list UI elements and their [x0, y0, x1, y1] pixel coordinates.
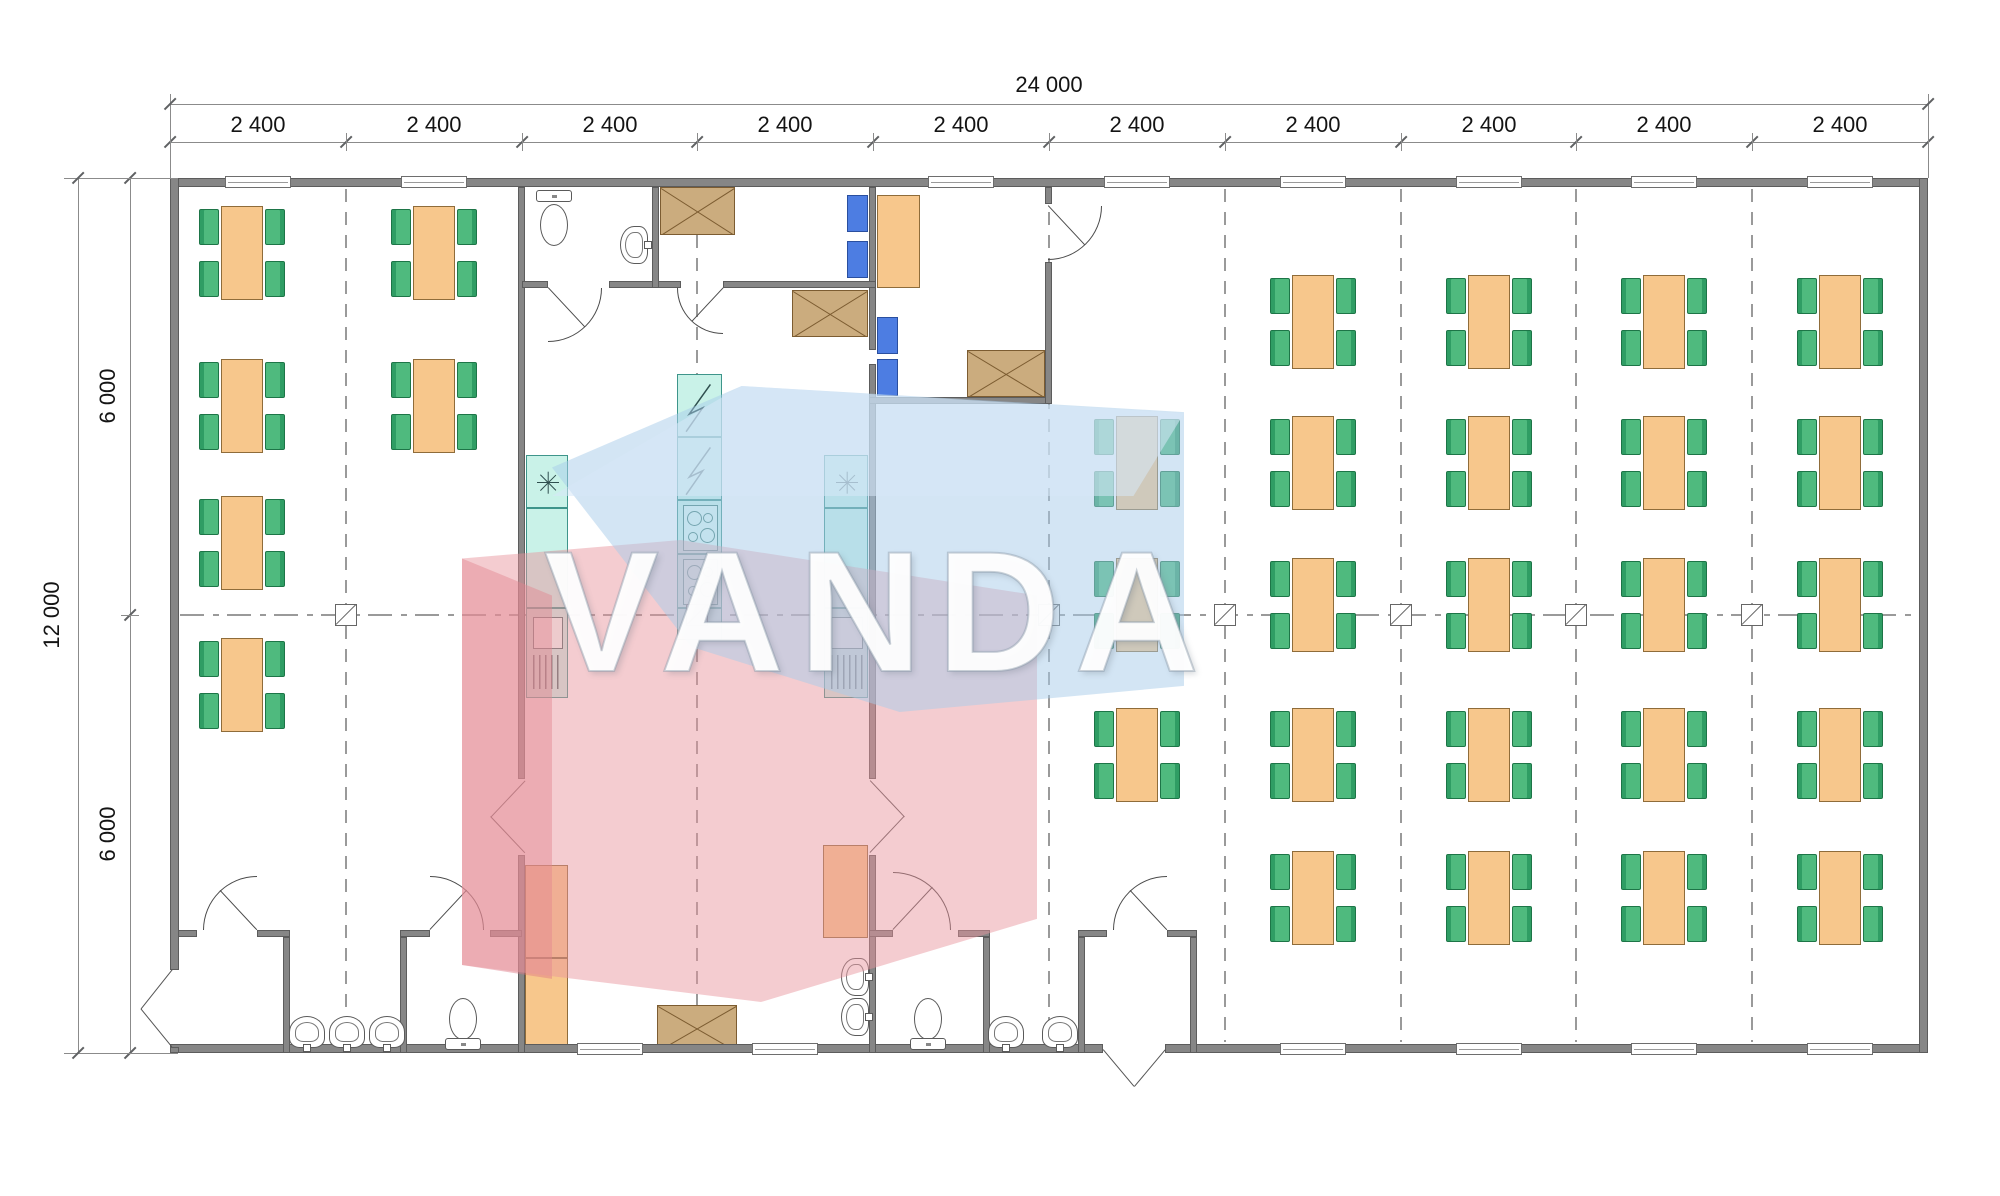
burner-icon — [688, 586, 698, 596]
fridge-vent — [831, 655, 863, 689]
chair — [1270, 419, 1290, 455]
dimension-label: 2 400 — [933, 112, 988, 138]
stove-burner-plate — [683, 559, 718, 605]
chair — [1446, 763, 1466, 799]
window-glazing-line — [1810, 182, 1870, 183]
chair — [1621, 561, 1641, 597]
chair — [1446, 330, 1466, 366]
wall-segment — [609, 281, 681, 288]
dining-table — [221, 359, 263, 453]
sink-basin — [625, 232, 643, 258]
dimension-label: 12 000 — [39, 581, 65, 648]
chair — [1446, 613, 1466, 649]
chair — [1687, 763, 1707, 799]
floor-plan-canvas: 24 0002 4002 4002 4002 4002 4002 4002 40… — [0, 0, 2000, 1196]
blue-chair — [847, 241, 868, 278]
stove-burner-plate — [683, 505, 718, 551]
chair — [1863, 613, 1883, 649]
door-leaf — [1102, 1050, 1134, 1088]
chair — [265, 499, 285, 535]
chair — [1512, 854, 1532, 890]
chair — [1687, 561, 1707, 597]
chair — [199, 209, 219, 245]
dining-table — [1643, 708, 1685, 802]
equipment-box — [792, 290, 868, 337]
chair — [1687, 278, 1707, 314]
kitchen-unit-star — [824, 455, 868, 508]
window-glazing-line — [1634, 182, 1694, 183]
kitchen-unit-plain — [824, 508, 868, 608]
dimension-label: 2 400 — [1109, 112, 1164, 138]
chair — [1863, 854, 1883, 890]
extension-line — [522, 133, 523, 151]
counter-cabinet — [525, 865, 568, 958]
chair — [1160, 419, 1180, 455]
chair — [1270, 330, 1290, 366]
window — [577, 1043, 643, 1055]
sink-basin — [994, 1022, 1018, 1042]
chair — [199, 551, 219, 587]
wall-segment — [869, 855, 876, 1053]
chair — [1446, 561, 1466, 597]
dining-table — [1292, 851, 1334, 945]
door-leaf — [869, 781, 904, 818]
module-marker-diagonal — [1391, 605, 1412, 626]
chair — [1797, 561, 1817, 597]
dimension-label: 2 400 — [230, 112, 285, 138]
chair — [1797, 763, 1817, 799]
dimension-label: 6 000 — [95, 368, 121, 423]
extension-line — [1752, 133, 1753, 151]
sink-tap — [343, 1044, 351, 1052]
chair — [1446, 711, 1466, 747]
burner-icon — [687, 511, 702, 526]
chair — [1512, 763, 1532, 799]
burner-icon — [703, 513, 713, 523]
chair — [1621, 613, 1641, 649]
chair — [265, 209, 285, 245]
chair — [1621, 854, 1641, 890]
chair — [1621, 330, 1641, 366]
chair — [199, 414, 219, 450]
module-marker — [1038, 604, 1060, 626]
chair — [391, 414, 411, 450]
sink-tap — [1002, 1044, 1010, 1052]
module-marker-diagonal — [336, 605, 357, 626]
chair — [265, 414, 285, 450]
chair — [391, 261, 411, 297]
chair — [265, 362, 285, 398]
chair — [1797, 613, 1817, 649]
chair — [1336, 711, 1356, 747]
chair — [457, 209, 477, 245]
window-glazing-line — [1283, 182, 1343, 183]
toilet — [445, 1038, 481, 1050]
chair — [1797, 906, 1817, 942]
fridge-vent — [533, 655, 563, 689]
window-glazing-line — [755, 1049, 815, 1050]
chair — [1797, 711, 1817, 747]
dining-table — [1292, 708, 1334, 802]
chair — [1094, 763, 1114, 799]
chair — [1336, 278, 1356, 314]
dining-table — [1468, 851, 1510, 945]
dimension-label: 2 400 — [1636, 112, 1691, 138]
sink-basin — [1048, 1022, 1072, 1042]
wall-segment — [1045, 262, 1052, 404]
chair — [1512, 278, 1532, 314]
wall-segment — [1078, 937, 1085, 1053]
chair — [1270, 763, 1290, 799]
chair — [1512, 330, 1532, 366]
chair — [1094, 613, 1114, 649]
dimension-label: 24 000 — [1015, 72, 1082, 98]
sink-basin — [335, 1022, 359, 1042]
sink-tap — [303, 1044, 311, 1052]
dining-table — [1819, 558, 1861, 652]
chair — [1094, 561, 1114, 597]
chair — [265, 551, 285, 587]
module-marker — [1214, 604, 1236, 626]
chair — [1160, 561, 1180, 597]
toilet — [910, 1038, 946, 1050]
dining-table — [413, 206, 455, 300]
burner-icon — [700, 582, 715, 597]
wall-segment — [1078, 930, 1107, 937]
dimension-label: 2 400 — [582, 112, 637, 138]
dining-table — [1116, 558, 1158, 652]
wall-segment — [522, 281, 548, 288]
chair — [457, 414, 477, 450]
module-marker — [1741, 604, 1763, 626]
sink-basin — [846, 964, 864, 990]
chair — [1687, 854, 1707, 890]
chair — [1863, 763, 1883, 799]
dining-table — [1468, 708, 1510, 802]
wall-segment — [869, 930, 893, 937]
extension-line — [697, 133, 698, 151]
dining-table — [221, 638, 263, 732]
door-leaf — [140, 970, 172, 1010]
chair — [1160, 613, 1180, 649]
dining-table — [1819, 708, 1861, 802]
burner-icon — [700, 528, 715, 543]
window — [1280, 1043, 1346, 1055]
window — [401, 176, 467, 188]
chair — [1863, 278, 1883, 314]
wall-segment — [518, 187, 525, 779]
chair — [199, 362, 219, 398]
equipment-box — [660, 187, 735, 235]
chair — [1797, 278, 1817, 314]
module-marker — [335, 604, 357, 626]
window-glazing-line — [1810, 1049, 1870, 1050]
chair — [1863, 419, 1883, 455]
chair — [1336, 854, 1356, 890]
dining-table — [1819, 416, 1861, 510]
dimension-line — [170, 104, 1928, 105]
toilet-bowl — [449, 998, 477, 1040]
dimension-label: 6 000 — [95, 806, 121, 861]
dining-table — [1819, 851, 1861, 945]
sink-tap — [383, 1044, 391, 1052]
module-marker — [1390, 604, 1412, 626]
chair — [1446, 278, 1466, 314]
dining-table — [1116, 416, 1158, 510]
window-glazing-line — [1459, 182, 1519, 183]
wall-segment — [170, 178, 179, 970]
dining-table — [1292, 275, 1334, 369]
window-glazing-line — [404, 182, 464, 183]
dining-table — [1643, 275, 1685, 369]
dining-table — [1468, 558, 1510, 652]
wall-segment — [723, 281, 876, 288]
chair — [1270, 613, 1290, 649]
burner-icon — [688, 532, 698, 542]
chair — [1621, 419, 1641, 455]
sink-tap — [1056, 1044, 1064, 1052]
dining-table — [221, 206, 263, 300]
chair — [1687, 906, 1707, 942]
dining-table — [1468, 275, 1510, 369]
fridge-door — [831, 617, 863, 649]
chair — [1160, 763, 1180, 799]
dimension-label: 2 400 — [757, 112, 812, 138]
chair — [265, 261, 285, 297]
watermark-blue-top — [552, 386, 1184, 496]
chair — [1446, 854, 1466, 890]
window — [225, 176, 291, 188]
chair — [1863, 711, 1883, 747]
dining-table — [1643, 416, 1685, 510]
toilet-button — [552, 195, 557, 198]
window — [752, 1043, 818, 1055]
chair — [457, 261, 477, 297]
extension-line — [170, 133, 171, 151]
kitchen-unit-fridge — [526, 608, 568, 698]
wall-segment — [1045, 187, 1052, 204]
dining-table — [1292, 416, 1334, 510]
window — [1456, 1043, 1522, 1055]
window — [1280, 176, 1346, 188]
kitchen-unit-burners — [677, 554, 722, 608]
dining-table — [1643, 558, 1685, 652]
module-marker-diagonal — [687, 605, 708, 626]
extension-line — [873, 133, 874, 151]
chair — [1797, 330, 1817, 366]
chair — [1621, 711, 1641, 747]
wall-segment — [869, 187, 876, 350]
chair — [1270, 711, 1290, 747]
chair — [1687, 330, 1707, 366]
dining-table — [1292, 558, 1334, 652]
module-marker-diagonal — [1215, 605, 1236, 626]
toilet — [536, 190, 572, 202]
dimension-line — [78, 178, 79, 1053]
window-glazing-line — [1283, 1049, 1343, 1050]
sink-basin — [846, 1004, 864, 1030]
window — [1456, 176, 1522, 188]
module-marker — [1565, 604, 1587, 626]
watermark-text: VANDA — [544, 526, 1213, 698]
chair — [199, 693, 219, 729]
window-glazing-line — [931, 182, 991, 183]
window — [1631, 1043, 1697, 1055]
module-marker — [686, 604, 708, 626]
kitchen-unit-star — [526, 455, 568, 508]
chair — [1863, 330, 1883, 366]
wall-segment — [257, 930, 290, 937]
counter-cabinet — [525, 958, 568, 1051]
chair — [1446, 471, 1466, 507]
chair — [1446, 419, 1466, 455]
chair — [1270, 471, 1290, 507]
wall-segment — [400, 930, 430, 937]
chair — [1863, 561, 1883, 597]
chair — [1863, 471, 1883, 507]
chair — [1797, 471, 1817, 507]
sink-tap — [865, 1013, 873, 1021]
chair — [265, 641, 285, 677]
dimension-label: 2 400 — [1285, 112, 1340, 138]
dining-table — [1116, 708, 1158, 802]
chair — [1270, 278, 1290, 314]
toilet-button — [926, 1043, 931, 1046]
watermark-blue-band — [552, 386, 1184, 712]
wall-segment — [958, 930, 990, 937]
chair — [1512, 471, 1532, 507]
window-glazing-line — [1634, 1049, 1694, 1050]
module-marker-diagonal — [1039, 605, 1060, 626]
extension-line — [121, 178, 139, 179]
chair — [1687, 471, 1707, 507]
window — [1104, 176, 1170, 188]
chair — [1336, 906, 1356, 942]
chair — [391, 362, 411, 398]
chair — [1621, 763, 1641, 799]
dining-table — [1819, 275, 1861, 369]
wall-segment — [652, 187, 659, 288]
wall-segment — [490, 930, 522, 937]
chair — [1512, 613, 1532, 649]
chair — [1160, 471, 1180, 507]
dimension-label: 2 400 — [1461, 112, 1516, 138]
blue-chair — [847, 195, 868, 232]
window — [928, 176, 994, 188]
counter-cabinet — [877, 195, 920, 288]
dimension-label: 2 400 — [406, 112, 461, 138]
door-leaf — [490, 817, 525, 854]
chair — [1336, 561, 1356, 597]
dining-table — [221, 496, 263, 590]
window-glazing-line — [1459, 1049, 1519, 1050]
wall-segment — [1167, 930, 1197, 937]
fridge-door — [533, 617, 563, 649]
chair — [1160, 711, 1180, 747]
sink-tap — [644, 241, 652, 249]
chair — [1621, 471, 1641, 507]
burner-icon — [687, 565, 702, 580]
toilet-bowl — [914, 998, 942, 1040]
chair — [1336, 419, 1356, 455]
extension-line — [1928, 133, 1929, 151]
dining-table — [413, 359, 455, 453]
module-marker-diagonal — [1566, 605, 1587, 626]
counter-cabinet — [823, 845, 868, 938]
electric-bolt-icon — [678, 438, 723, 501]
chair — [1512, 419, 1532, 455]
dining-table — [1468, 416, 1510, 510]
chair — [1621, 906, 1641, 942]
chair — [1687, 711, 1707, 747]
chair — [1863, 906, 1883, 942]
kitchen-unit-plain — [526, 508, 568, 608]
extension-line — [121, 1053, 139, 1054]
blue-chair — [877, 317, 898, 354]
chair — [1336, 330, 1356, 366]
extension-line — [1576, 133, 1577, 151]
kitchen-unit-burners — [677, 500, 722, 554]
dining-table — [1643, 851, 1685, 945]
sink-basin — [295, 1022, 319, 1042]
chair — [1512, 906, 1532, 942]
chair — [1270, 561, 1290, 597]
wall-segment — [518, 855, 525, 1053]
extension-line — [1401, 133, 1402, 151]
chair — [1094, 419, 1114, 455]
chair — [1336, 613, 1356, 649]
door-leaf — [869, 817, 904, 854]
wall-segment — [1919, 178, 1928, 1053]
window — [1807, 1043, 1873, 1055]
window — [1631, 176, 1697, 188]
chair — [1687, 419, 1707, 455]
burner-icon — [703, 567, 713, 577]
extension-line — [346, 133, 347, 151]
blue-chair — [877, 359, 898, 396]
chair — [1270, 854, 1290, 890]
extension-line — [121, 615, 139, 616]
chair — [457, 362, 477, 398]
chair — [1270, 906, 1290, 942]
chair — [265, 693, 285, 729]
toilet-button — [461, 1043, 466, 1046]
equipment-box — [967, 350, 1045, 397]
extension-line — [1049, 133, 1050, 151]
sink-basin — [375, 1022, 399, 1042]
dimension-label: 2 400 — [1812, 112, 1867, 138]
chair — [1512, 711, 1532, 747]
module-marker-diagonal — [1742, 605, 1763, 626]
chair — [1336, 471, 1356, 507]
chair — [1446, 906, 1466, 942]
chair — [1336, 763, 1356, 799]
chair — [1797, 854, 1817, 890]
door-leaf — [1133, 1050, 1165, 1088]
wall-segment — [1190, 937, 1197, 1053]
chair — [1687, 613, 1707, 649]
window-glazing-line — [1107, 182, 1167, 183]
chair — [199, 499, 219, 535]
window — [1807, 176, 1873, 188]
window-glazing-line — [228, 182, 288, 183]
door-leaf — [490, 781, 525, 818]
chair — [1094, 471, 1114, 507]
chair — [199, 261, 219, 297]
chair — [199, 641, 219, 677]
extension-line — [1225, 133, 1226, 151]
chair — [391, 209, 411, 245]
